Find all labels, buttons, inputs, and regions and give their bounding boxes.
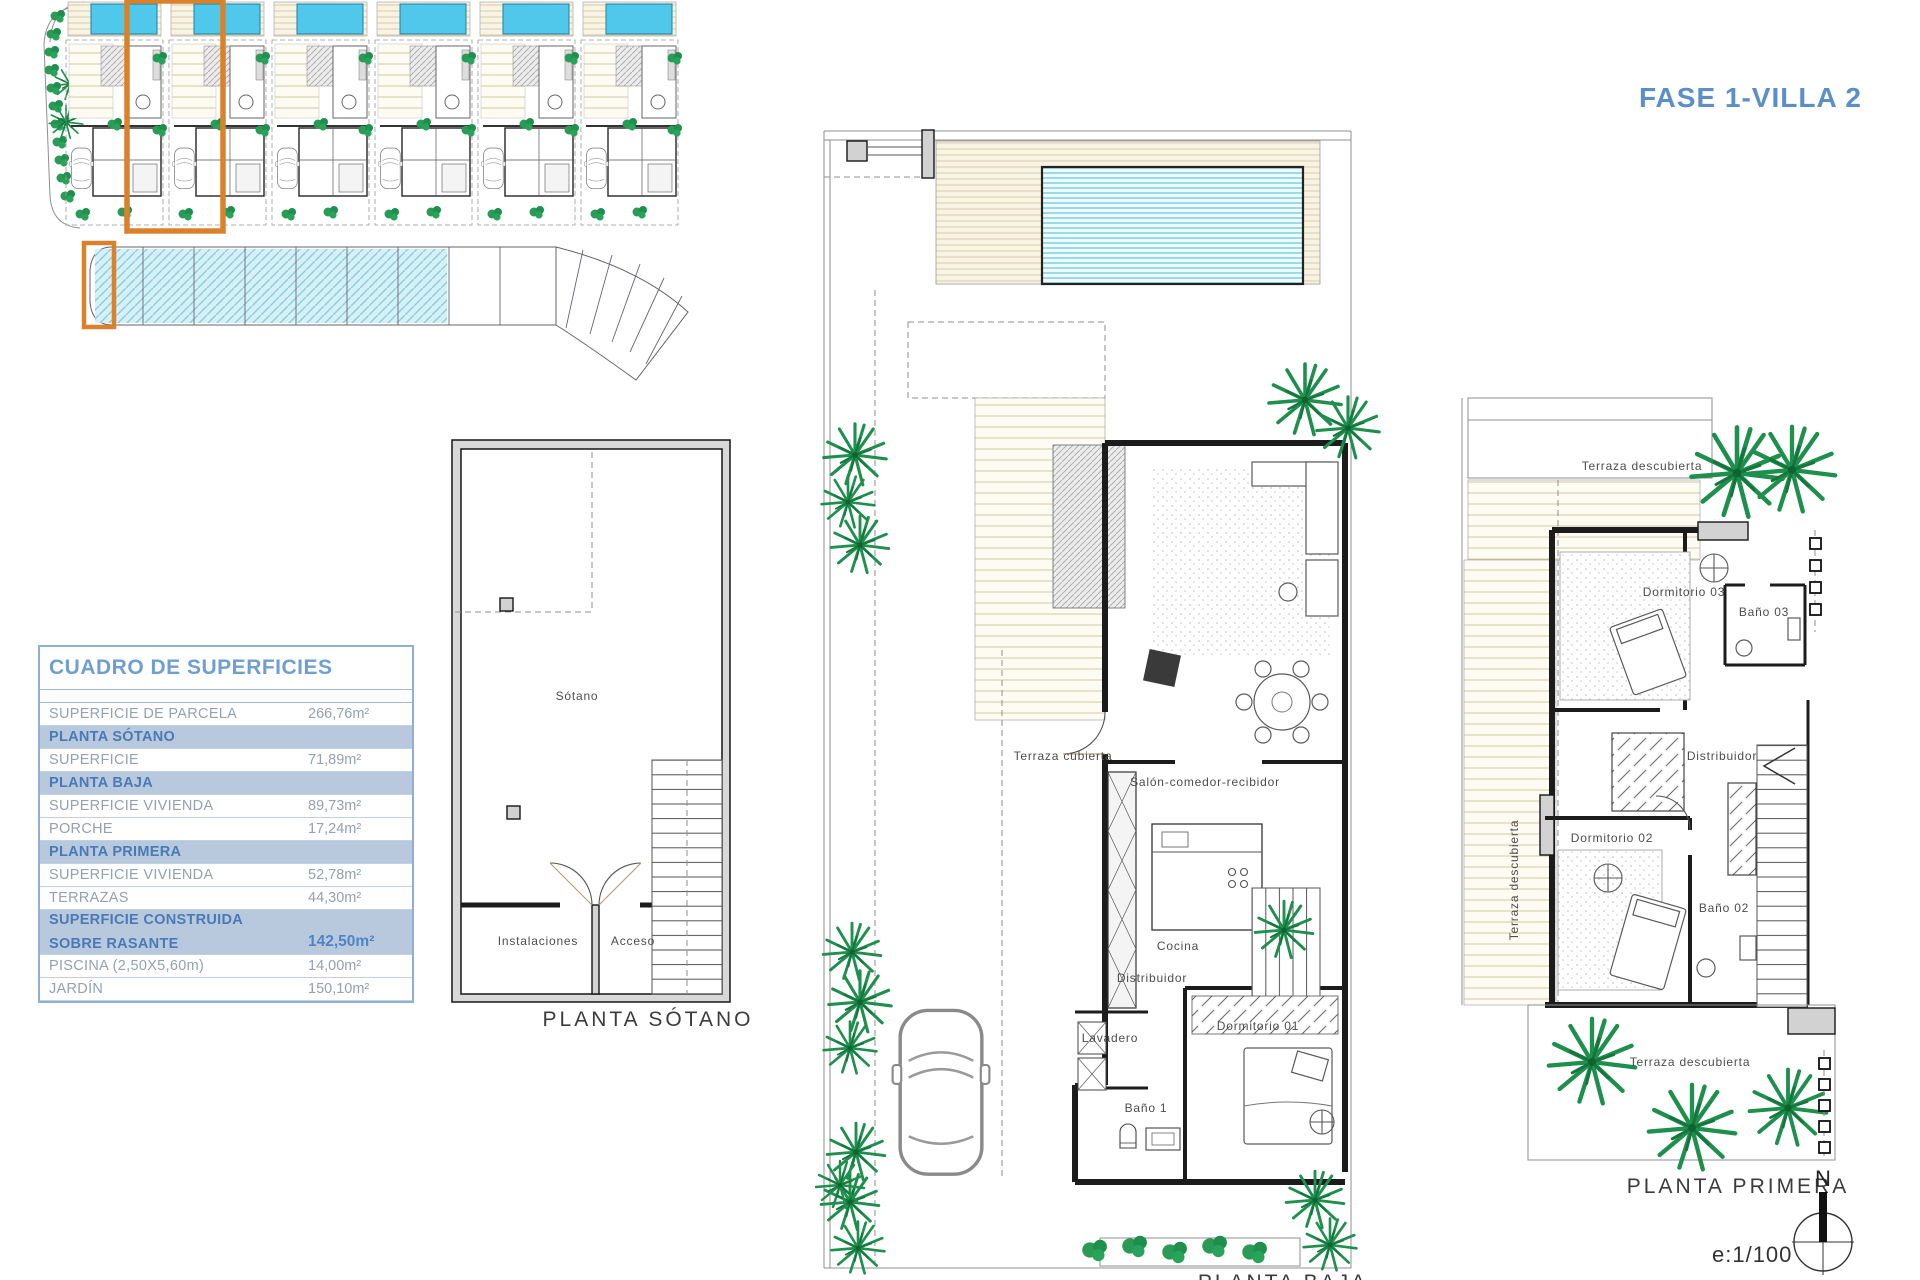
sink-icon (1788, 618, 1800, 640)
total-value: 142,50m² (308, 933, 408, 954)
compass-north-label: N (1815, 1166, 1831, 1191)
total-label-line2: SOBRE RASANTE (49, 936, 308, 952)
toilet-icon (1120, 1124, 1136, 1148)
row-label: SUPERFICIE VIVIENDA (49, 798, 308, 814)
table-row: JARDÍN 150,10m² (40, 978, 412, 1001)
room-label-salon: Salón-comedor-recibidor (1130, 775, 1280, 789)
room-label-sotano: Sótano (556, 689, 599, 703)
room-label-terraza-left: Terraza descubierta (1507, 820, 1521, 941)
toilet-icon (1736, 640, 1752, 656)
plan-title-sotano: PLANTA SÓTANO (543, 1008, 754, 1031)
plan-title-baja: PLANTA BAJA (1198, 1271, 1368, 1280)
room-label-bano1: Baño 1 (1125, 1101, 1168, 1115)
site-parking (84, 243, 688, 380)
table-row: SUPERFICIE VIVIENDA 52,78m² (40, 864, 412, 887)
sink-icon (1146, 1128, 1180, 1150)
section-label: PLANTA BAJA (49, 775, 408, 791)
row-label: SUPERFICIE (49, 752, 308, 768)
table-row: PISCINA (2,50X5,60m) 14,00m² (40, 955, 412, 978)
row-value: 14,00m² (308, 958, 408, 974)
column (507, 806, 520, 819)
bottom-terrace (1528, 1005, 1835, 1169)
ceiling-fan-icon (1310, 1110, 1334, 1134)
room-label-dormitorio03: Dormitorio 03 (1643, 585, 1725, 599)
parking-hatched-area (95, 249, 447, 323)
section-label: PLANTA SÓTANO (49, 729, 408, 745)
table-total-row: SUPERFICIE CONSTRUIDA SOBRE RASANTE 142,… (40, 910, 412, 955)
basement-stairs (652, 760, 722, 994)
column (500, 598, 513, 611)
row-value: 71,89m² (308, 752, 408, 768)
floor-plan-canvas: Sótano Instalaciones Acceso PLANTA SÓTAN… (0, 0, 1920, 1280)
room-label-dormitorio01: Dormitorio 01 (1217, 1019, 1299, 1033)
room-label-distribuidor: Distribuidor (1117, 971, 1187, 985)
room-label-lavadero: Lavadero (1082, 1031, 1138, 1045)
room-label-instalaciones: Instalaciones (498, 934, 578, 948)
table-row: SUPERFICIE 71,89m² (40, 749, 412, 772)
swimming-pool (1042, 167, 1303, 284)
bed-icon (1244, 1048, 1332, 1144)
row-label: SUPERFICIE VIVIENDA (49, 867, 308, 883)
row-label: TERRAZAS (49, 890, 308, 906)
row-value: 266,76m² (308, 706, 408, 722)
stairs (1757, 745, 1807, 1007)
dining-table (1236, 661, 1328, 743)
row-value: 17,24m² (308, 821, 408, 837)
room-label-distribuidor: Distribuidor (1687, 749, 1757, 763)
surface-table-title: CUADRO DE SUPERFICIES (40, 647, 412, 690)
utility-box (847, 141, 867, 161)
compass-needle (1819, 1192, 1827, 1242)
ceiling-fan-icon (1700, 554, 1728, 582)
table-section-row: PLANTA PRIMERA (40, 841, 412, 864)
row-value: 52,78m² (308, 867, 408, 883)
scale-label: e:1/100 (1712, 1242, 1792, 1267)
table-row: SUPERFICIE VIVIENDA 89,73m² (40, 795, 412, 818)
drawing-sheet: Sótano Instalaciones Acceso PLANTA SÓTAN… (0, 0, 1920, 1280)
wardrobe-hatch (1612, 733, 1684, 811)
row-label: PORCHE (49, 821, 308, 837)
plan-baja: Terraza cubierta Salón-comedor-recibidor… (816, 130, 1379, 1280)
pergola-louvres (1468, 480, 1700, 560)
ceiling-fan-icon (1594, 864, 1622, 892)
sink-icon (1740, 936, 1756, 960)
toilet-icon (1697, 959, 1715, 977)
boundary-posts (1810, 530, 1821, 632)
row-value: 44,30m² (308, 890, 408, 906)
table-section-row: PLANTA BAJA (40, 772, 412, 795)
wardrobe-hatch (1728, 783, 1756, 875)
total-label-line1: SUPERFICIE CONSTRUIDA (49, 912, 308, 928)
table-row: PORCHE 17,24m² (40, 818, 412, 841)
room-label-terraza-cubierta: Terraza cubierta (1014, 749, 1113, 763)
armchair (1143, 649, 1181, 687)
kitchen-island (1152, 824, 1262, 930)
table-section-row: PLANTA SÓTANO (40, 726, 412, 749)
site-plan (44, 1, 688, 380)
surface-table: CUADRO DE SUPERFICIES SUPERFICIE DE PARC… (38, 645, 414, 1003)
room-label-terraza-bottom: Terraza descubierta (1630, 1055, 1751, 1069)
room-label-terraza-top: Terraza descubierta (1582, 459, 1703, 473)
table-spacer (40, 690, 412, 703)
sheet-title: FASE 1-VILLA 2 (1639, 82, 1862, 114)
section-label: PLANTA PRIMERA (49, 844, 408, 860)
row-label: SUPERFICIE DE PARCELA (49, 706, 308, 722)
room-label-bano02: Baño 02 (1699, 901, 1749, 915)
room-label-acceso: Acceso (611, 934, 655, 948)
gate-post (922, 130, 934, 178)
row-label: PISCINA (2,50X5,60m) (49, 958, 308, 974)
row-value: 150,10m² (308, 981, 408, 997)
table-row: SUPERFICIE DE PARCELA 266,76m² (40, 703, 412, 726)
row-label: JARDÍN (49, 981, 308, 997)
plan-sotano: Sótano Instalaciones Acceso PLANTA SÓTAN… (452, 440, 753, 1031)
room-label-dormitorio02: Dormitorio 02 (1571, 831, 1653, 845)
living-room-rug (1150, 468, 1330, 658)
room-label-cocina: Cocina (1157, 939, 1199, 953)
table-row: TERRAZAS 44,30m² (40, 887, 412, 910)
row-value: 89,73m² (308, 798, 408, 814)
room-label-bano03: Baño 03 (1739, 605, 1789, 619)
plan-primera: Terraza descubierta Terraza descubierta … (1462, 398, 1849, 1198)
